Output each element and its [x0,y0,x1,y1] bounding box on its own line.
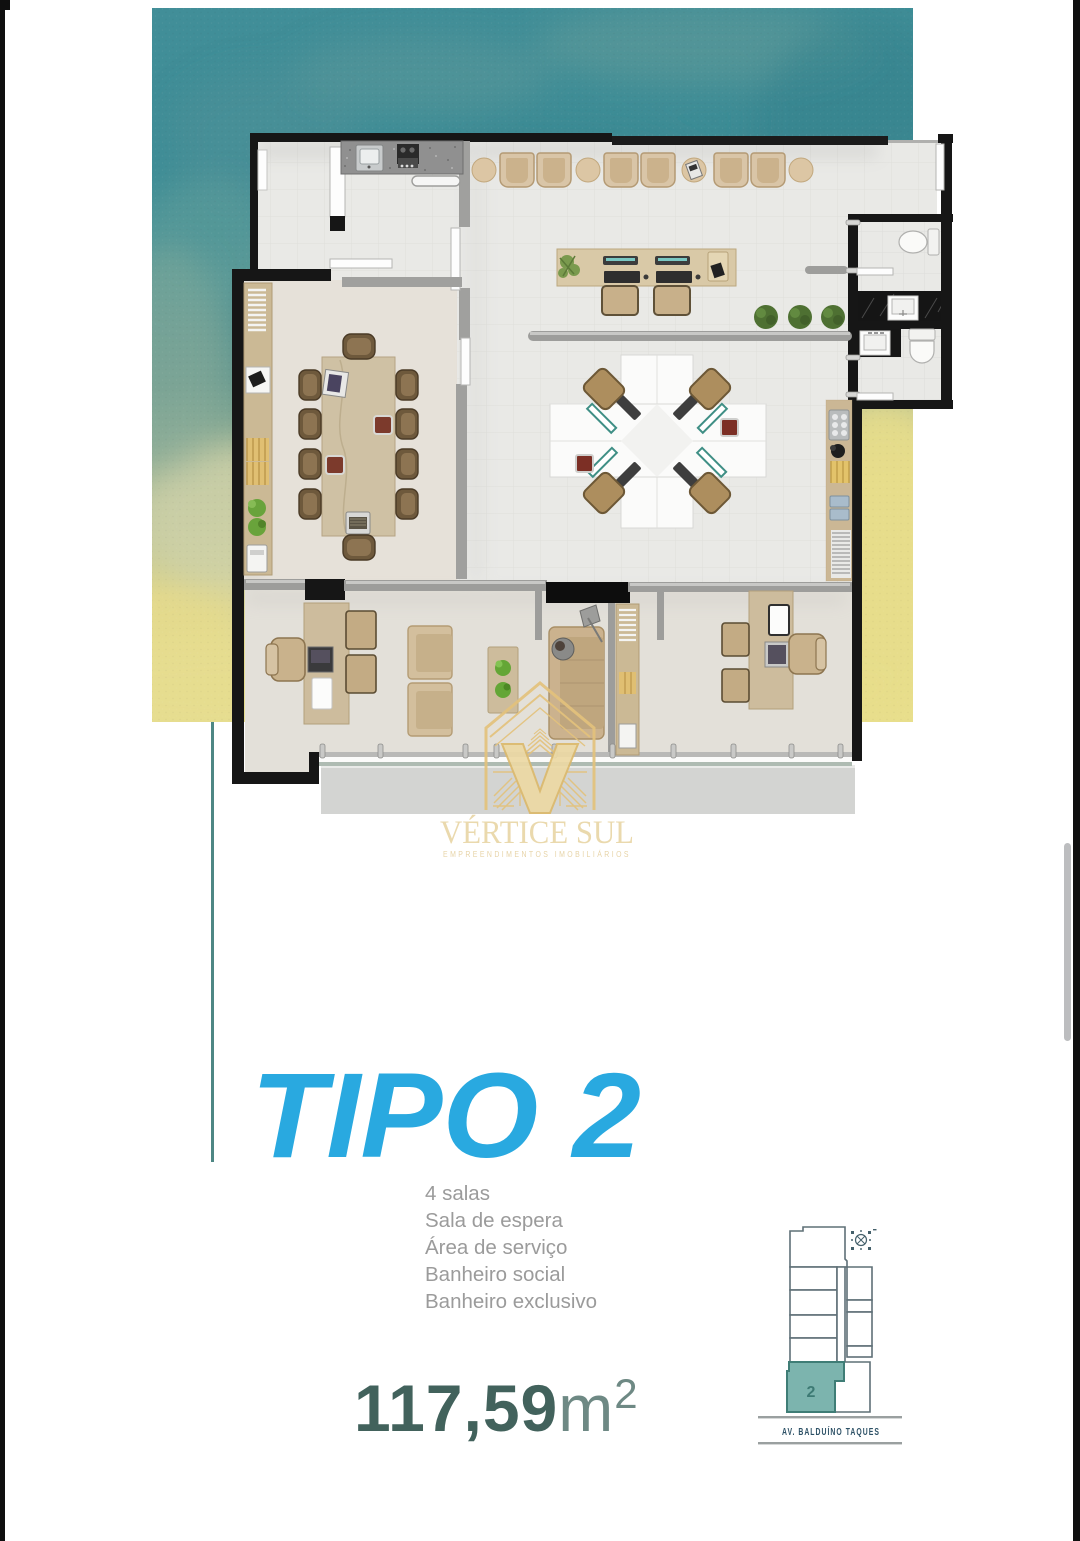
svg-text:117,59m2: 117,59m2 [354,1370,639,1445]
svg-text:Área de serviço: Área de serviço [425,1236,567,1259]
svg-text:4 salas: 4 salas [425,1182,490,1205]
svg-text:Sala de espera: Sala de espera [425,1209,564,1232]
svg-text:Banheiro exclusivo: Banheiro exclusivo [425,1290,597,1313]
svg-text:AV. BALDUÍNO TAQUES: AV. BALDUÍNO TAQUES [782,1425,880,1438]
svg-text:VÉRTICE SUL: VÉRTICE SUL [440,814,634,851]
svg-text:TIPO 2: TIPO 2 [251,1047,641,1183]
svg-text:Banheiro social: Banheiro social [425,1263,565,1286]
svg-text:2: 2 [807,1384,816,1401]
svg-text:EMPREENDIMENTOS IMOBILIÁRIOS: EMPREENDIMENTOS IMOBILIÁRIOS [443,849,631,859]
